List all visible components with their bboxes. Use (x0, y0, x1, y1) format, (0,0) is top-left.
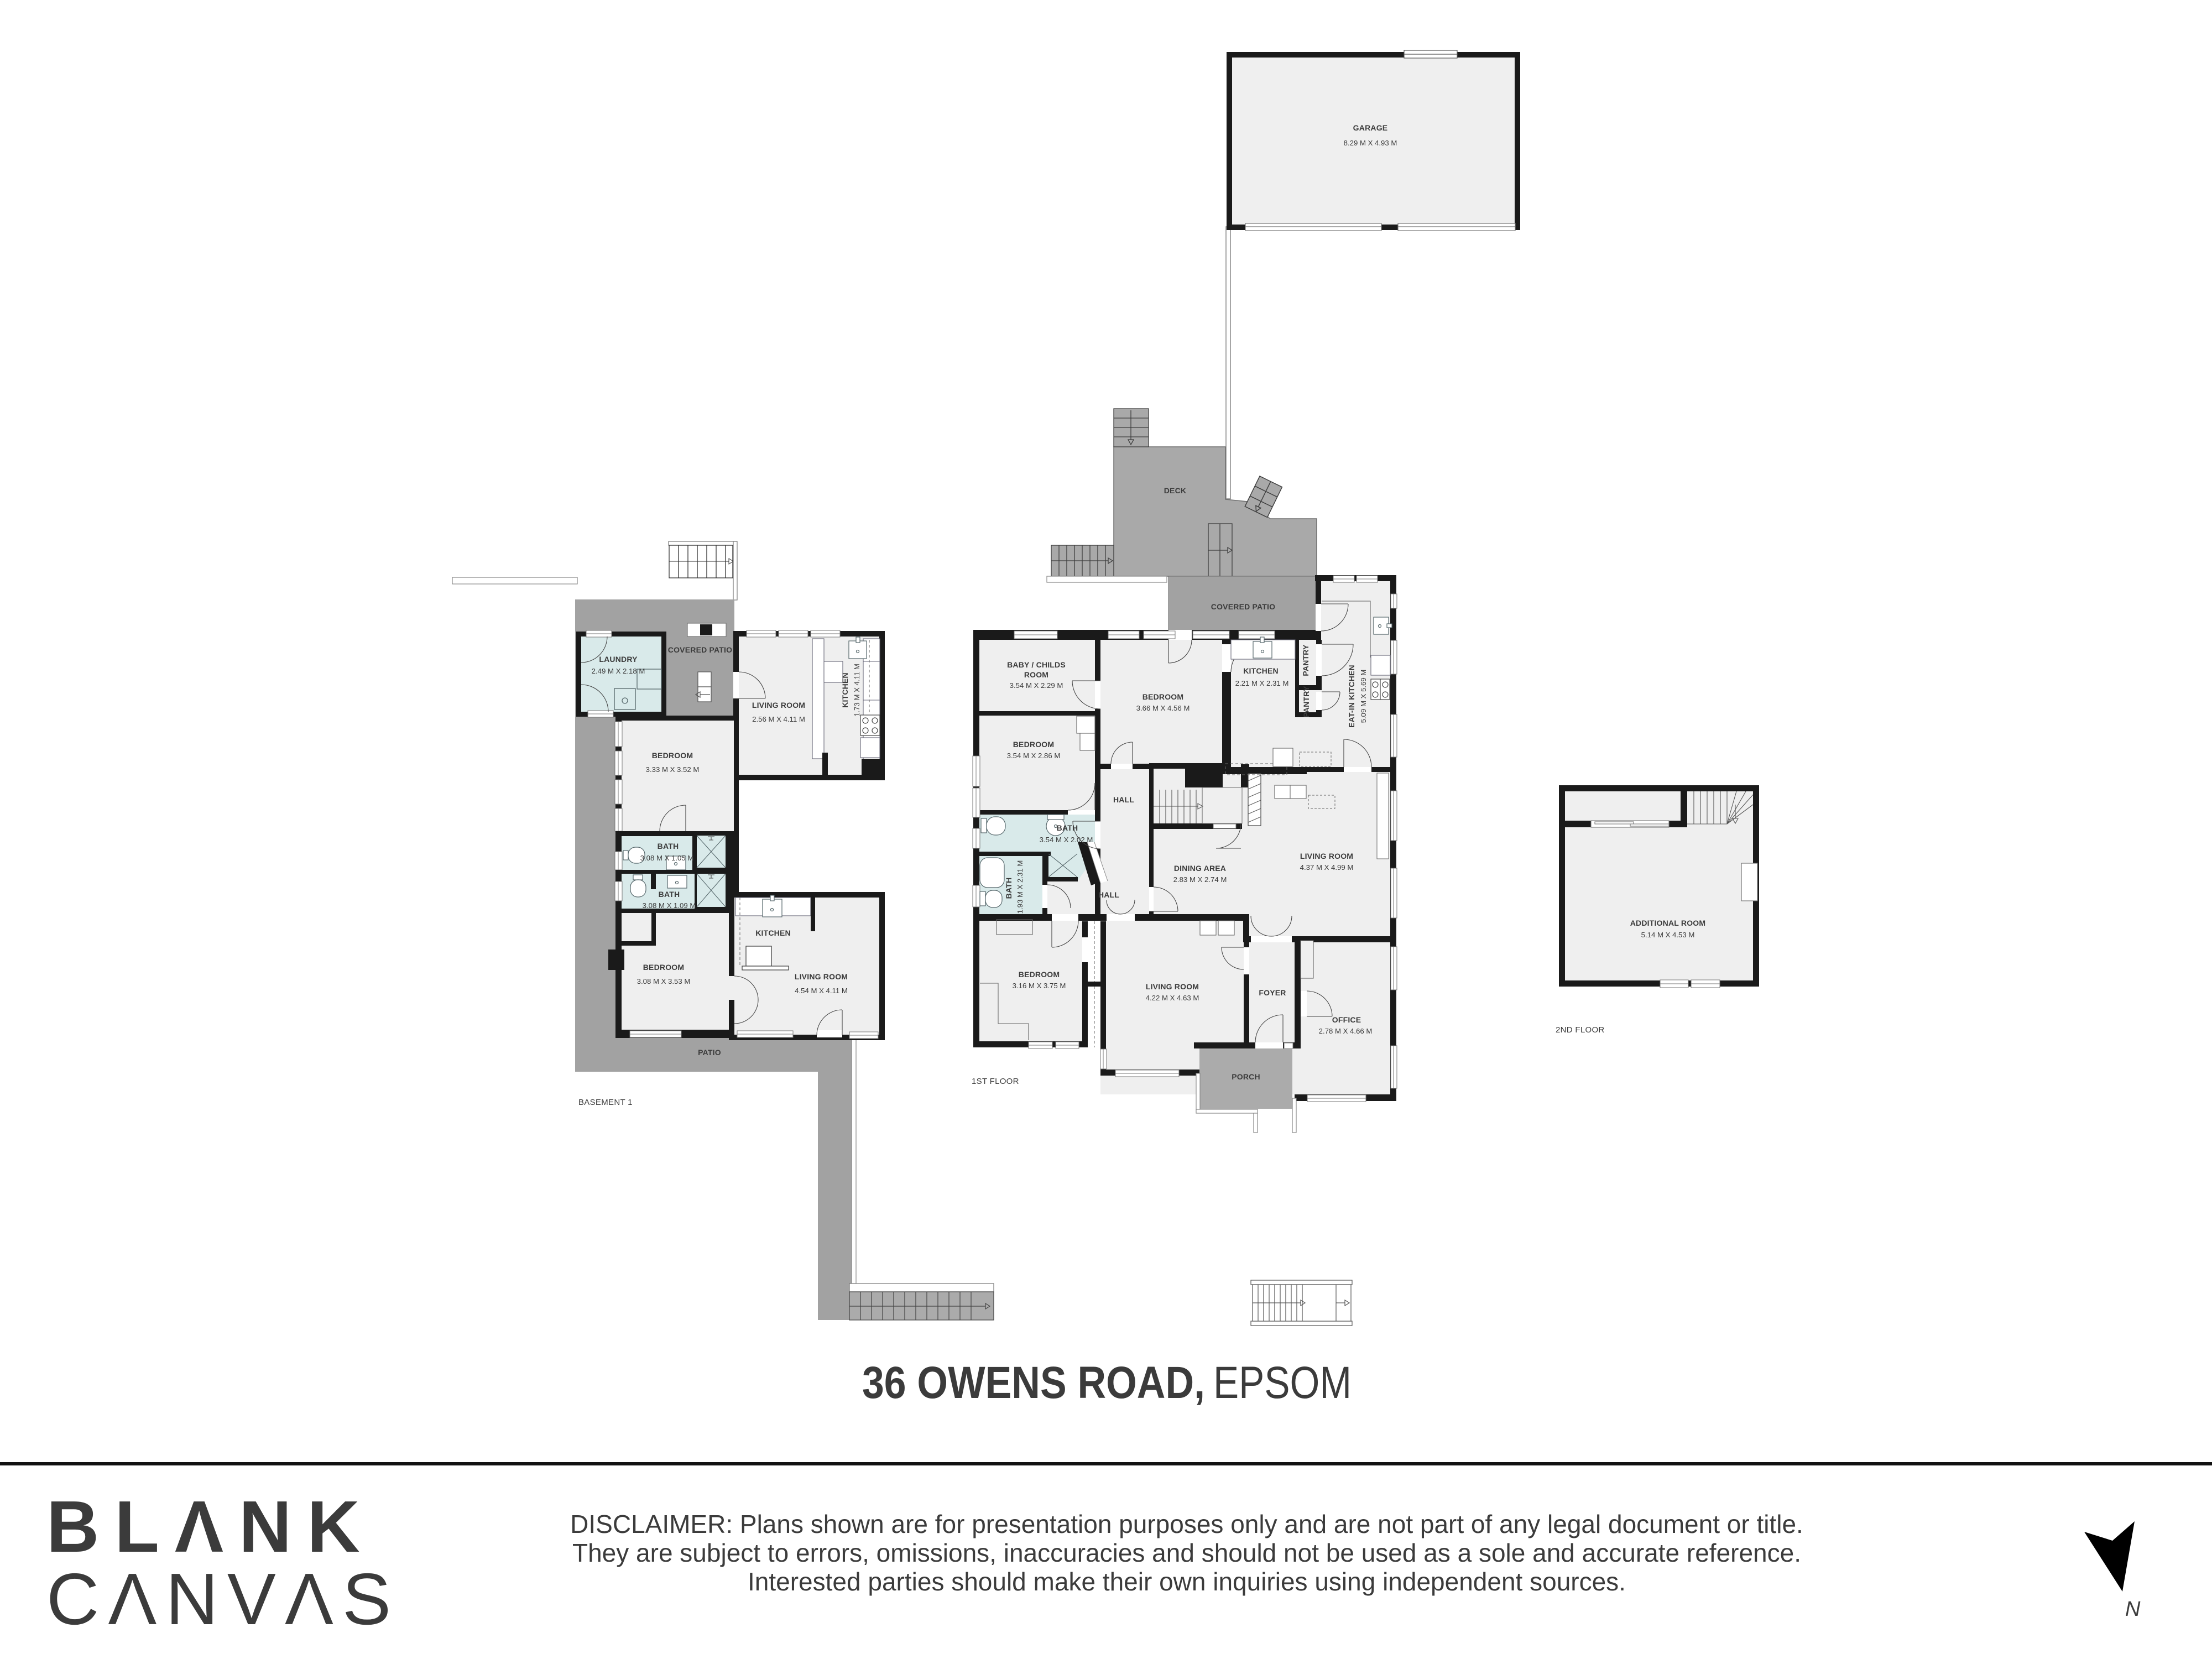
svg-text:They are subject to errors, om: They are subject to errors, omissions, i… (572, 1538, 1801, 1567)
svg-text:PANTRY: PANTRY (1301, 644, 1310, 676)
svg-text:2.83 M X 2.74 M: 2.83 M X 2.74 M (1173, 875, 1227, 884)
svg-text:BLΛNK: BLΛNK (46, 1486, 375, 1567)
svg-text:4.22 M X 4.63 M: 4.22 M X 4.63 M (1146, 994, 1199, 1002)
svg-text:EAT-IN KITCHEN: EAT-IN KITCHEN (1347, 665, 1356, 728)
svg-text:BEDROOM: BEDROOM (652, 751, 693, 760)
svg-text:3.08 M X 1.05 M: 3.08 M X 1.05 M (640, 854, 694, 862)
svg-text:BEDROOM: BEDROOM (643, 963, 685, 972)
svg-text:LIVING ROOM: LIVING ROOM (795, 972, 848, 981)
svg-text:1.93 M X 2.31 M: 1.93 M X 2.31 M (1016, 860, 1024, 914)
svg-text:CΛNVΛS: CΛNVΛS (46, 1558, 400, 1640)
svg-text:HALL: HALL (1098, 890, 1119, 899)
svg-text:3.54 M X 2.29 M: 3.54 M X 2.29 M (1010, 681, 1063, 690)
svg-text:PATIO: PATIO (698, 1048, 721, 1057)
svg-text:DINING AREA: DINING AREA (1174, 864, 1226, 873)
svg-text:KITCHEN: KITCHEN (841, 672, 849, 708)
svg-text:3.33 M X 3.52 M: 3.33 M X 3.52 M (646, 765, 700, 774)
svg-text:8.29 M X 4.93 M: 8.29 M X 4.93 M (1344, 139, 1397, 147)
svg-text:BEDROOM: BEDROOM (1013, 740, 1055, 749)
svg-text:FOYER: FOYER (1259, 988, 1286, 997)
svg-text:BEDROOM: BEDROOM (1019, 970, 1060, 979)
svg-text:BATH: BATH (1004, 878, 1013, 899)
svg-text:OFFICE: OFFICE (1332, 1015, 1361, 1024)
svg-text:GARAGE: GARAGE (1353, 123, 1388, 132)
svg-text:2.21 M X 2.31 M: 2.21 M X 2.31 M (1235, 679, 1289, 687)
svg-text:2ND FLOOR: 2ND FLOOR (1556, 1025, 1605, 1035)
svg-text:36 OWENS ROAD,: 36 OWENS ROAD, (862, 1358, 1205, 1408)
svg-text:ADDITIONAL ROOM: ADDITIONAL ROOM (1630, 919, 1706, 927)
svg-text:2.56 M X 4.11 M: 2.56 M X 4.11 M (752, 715, 805, 723)
svg-text:HALL: HALL (1113, 795, 1134, 804)
svg-text:COVERED PATIO: COVERED PATIO (668, 645, 732, 654)
svg-text:5.14 M X 4.53 M: 5.14 M X 4.53 M (1641, 931, 1695, 939)
svg-text:ROOM: ROOM (1024, 670, 1048, 679)
svg-text:BATH: BATH (659, 890, 680, 899)
svg-text:2.78 M X 4.66 M: 2.78 M X 4.66 M (1319, 1027, 1373, 1035)
svg-text:COVERED PATIO: COVERED PATIO (1211, 602, 1275, 611)
svg-text:PANTRY: PANTRY (1302, 686, 1311, 718)
svg-text:2.49 M X 2.18 M: 2.49 M X 2.18 M (592, 667, 645, 675)
svg-text:3.66 M X 4.56 M: 3.66 M X 4.56 M (1136, 704, 1190, 712)
svg-text:KITCHEN: KITCHEN (755, 928, 791, 937)
svg-text:LIVING ROOM: LIVING ROOM (1146, 982, 1199, 991)
svg-text:LIVING ROOM: LIVING ROOM (752, 701, 805, 709)
svg-text:1.73 M X 4.11 M: 1.73 M X 4.11 M (853, 664, 861, 717)
svg-text:LAUNDRY: LAUNDRY (599, 655, 638, 664)
svg-text:1ST FLOOR: 1ST FLOOR (972, 1077, 1019, 1086)
svg-text:DECK: DECK (1164, 486, 1186, 495)
svg-text:4.37 M X 4.99 M: 4.37 M X 4.99 M (1300, 863, 1354, 872)
svg-text:3.54 M X 2.02 M: 3.54 M X 2.02 M (1040, 836, 1093, 844)
svg-text:BATH: BATH (658, 842, 679, 851)
svg-text:N: N (2125, 1598, 2141, 1621)
svg-text:KITCHEN: KITCHEN (1243, 666, 1279, 675)
svg-text:Interested parties should make: Interested parties should make their own… (748, 1567, 1626, 1596)
svg-text:3.08 M X 3.53 M: 3.08 M X 3.53 M (637, 977, 691, 985)
svg-text:DISCLAIMER: Plans shown are fo: DISCLAIMER: Plans shown are for presenta… (570, 1510, 1803, 1538)
svg-text:4.54 M X 4.11 M: 4.54 M X 4.11 M (795, 987, 848, 995)
svg-text:5.09 M X 5.69 M: 5.09 M X 5.69 M (1359, 670, 1368, 723)
svg-text:PORCH: PORCH (1232, 1072, 1260, 1081)
svg-text:3.08 M X 1.09 M: 3.08 M X 1.09 M (643, 901, 696, 910)
svg-text:BATH: BATH (1057, 823, 1078, 832)
svg-text:BEDROOM: BEDROOM (1142, 692, 1184, 701)
svg-text:BASEMENT 1: BASEMENT 1 (578, 1098, 633, 1107)
svg-text:EPSOM: EPSOM (1213, 1358, 1352, 1408)
svg-text:3.54 M X 2.86 M: 3.54 M X 2.86 M (1007, 752, 1061, 760)
svg-text:LIVING ROOM: LIVING ROOM (1300, 852, 1353, 860)
svg-text:BABY / CHILDS: BABY / CHILDS (1007, 660, 1066, 669)
svg-text:3.16 M X 3.75 M: 3.16 M X 3.75 M (1013, 982, 1066, 990)
